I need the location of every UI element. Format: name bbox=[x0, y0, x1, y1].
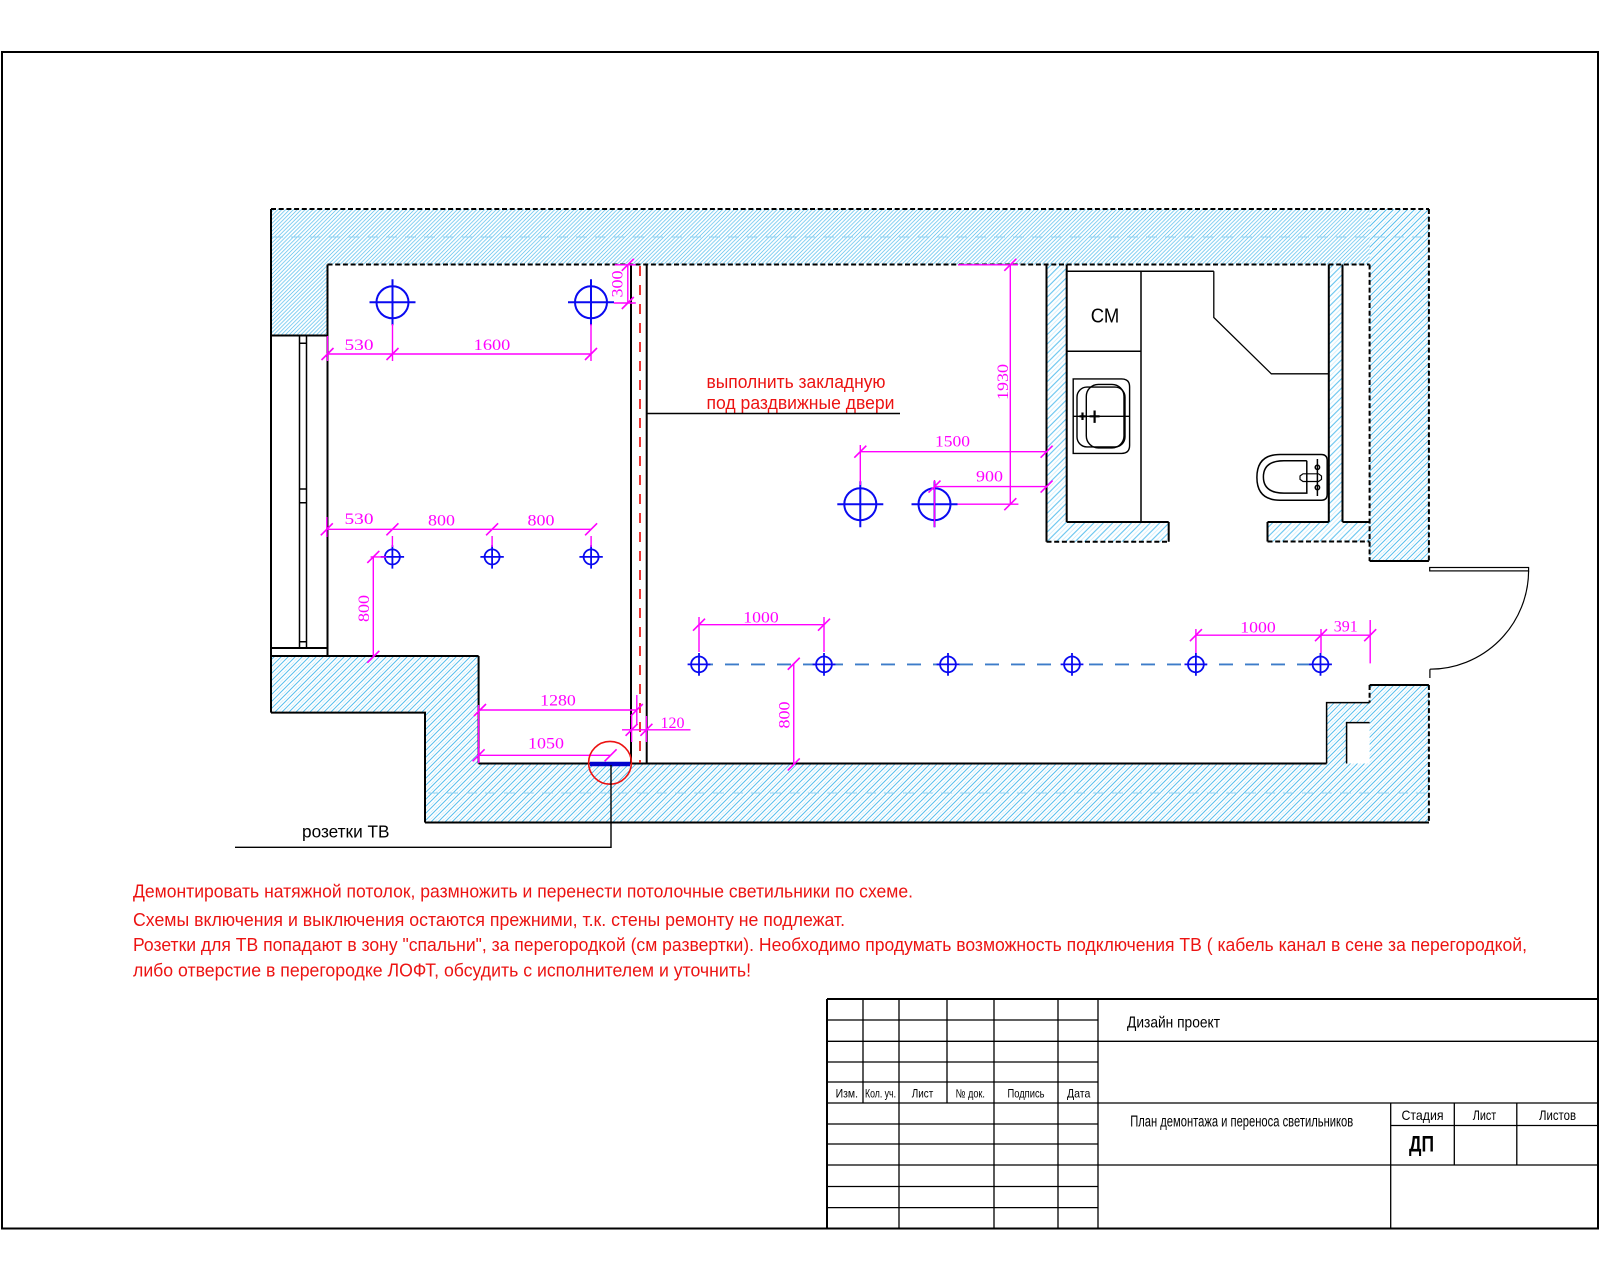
svg-text:530: 530 bbox=[345, 511, 374, 528]
svg-text:1000: 1000 bbox=[1240, 620, 1276, 637]
svg-text:Подпись: Подпись bbox=[1008, 1087, 1045, 1101]
svg-text:800: 800 bbox=[356, 595, 373, 622]
svg-text:Розетки для ТВ попадают в зону: Розетки для ТВ попадают в зону "спальни"… bbox=[133, 934, 1527, 955]
svg-text:СМ: СМ bbox=[1091, 306, 1120, 328]
svg-text:под раздвижные двери: под раздвижные двери bbox=[707, 392, 895, 413]
svg-text:План демонтажа и переноса свет: План демонтажа и переноса светильников bbox=[1130, 1114, 1353, 1131]
svg-text:розетки ТВ: розетки ТВ bbox=[302, 822, 390, 842]
svg-text:Лист: Лист bbox=[1473, 1107, 1497, 1123]
svg-text:Изм.: Изм. bbox=[836, 1087, 858, 1101]
svg-text:ДП: ДП bbox=[1409, 1132, 1434, 1157]
svg-text:391: 391 bbox=[1334, 619, 1358, 636]
svg-text:Дизайн проект: Дизайн проект bbox=[1127, 1015, 1221, 1032]
svg-text:выполнить закладную: выполнить закладную bbox=[707, 371, 886, 392]
svg-text:Кол. уч.: Кол. уч. bbox=[865, 1087, 896, 1101]
svg-text:530: 530 bbox=[345, 337, 374, 354]
svg-text:№ док.: № док. bbox=[956, 1087, 985, 1101]
svg-text:1050: 1050 bbox=[528, 736, 564, 753]
svg-text:либо отверстие в перегородке Л: либо отверстие в перегородке ЛОФТ, обсуд… bbox=[133, 960, 751, 981]
svg-text:800: 800 bbox=[428, 513, 455, 530]
svg-text:900: 900 bbox=[976, 469, 1003, 486]
svg-text:1930: 1930 bbox=[995, 364, 1012, 400]
svg-text:1500: 1500 bbox=[935, 434, 970, 451]
svg-text:Дата: Дата bbox=[1067, 1087, 1091, 1101]
svg-text:1280: 1280 bbox=[540, 693, 576, 710]
svg-text:Листов: Листов bbox=[1539, 1107, 1576, 1123]
svg-text:1000: 1000 bbox=[743, 610, 779, 627]
svg-text:800: 800 bbox=[777, 702, 794, 729]
svg-text:Лист: Лист bbox=[912, 1087, 934, 1101]
svg-text:1600: 1600 bbox=[474, 337, 511, 354]
svg-text:Схемы включения и выключения о: Схемы включения и выключения остаются пр… bbox=[133, 909, 845, 930]
svg-text:Демонтировать натяжной потолок: Демонтировать натяжной потолок, размножи… bbox=[133, 881, 913, 902]
svg-text:300: 300 bbox=[610, 271, 627, 298]
svg-text:800: 800 bbox=[528, 513, 555, 530]
svg-text:Стадия: Стадия bbox=[1402, 1107, 1444, 1123]
svg-text:120: 120 bbox=[661, 715, 685, 732]
